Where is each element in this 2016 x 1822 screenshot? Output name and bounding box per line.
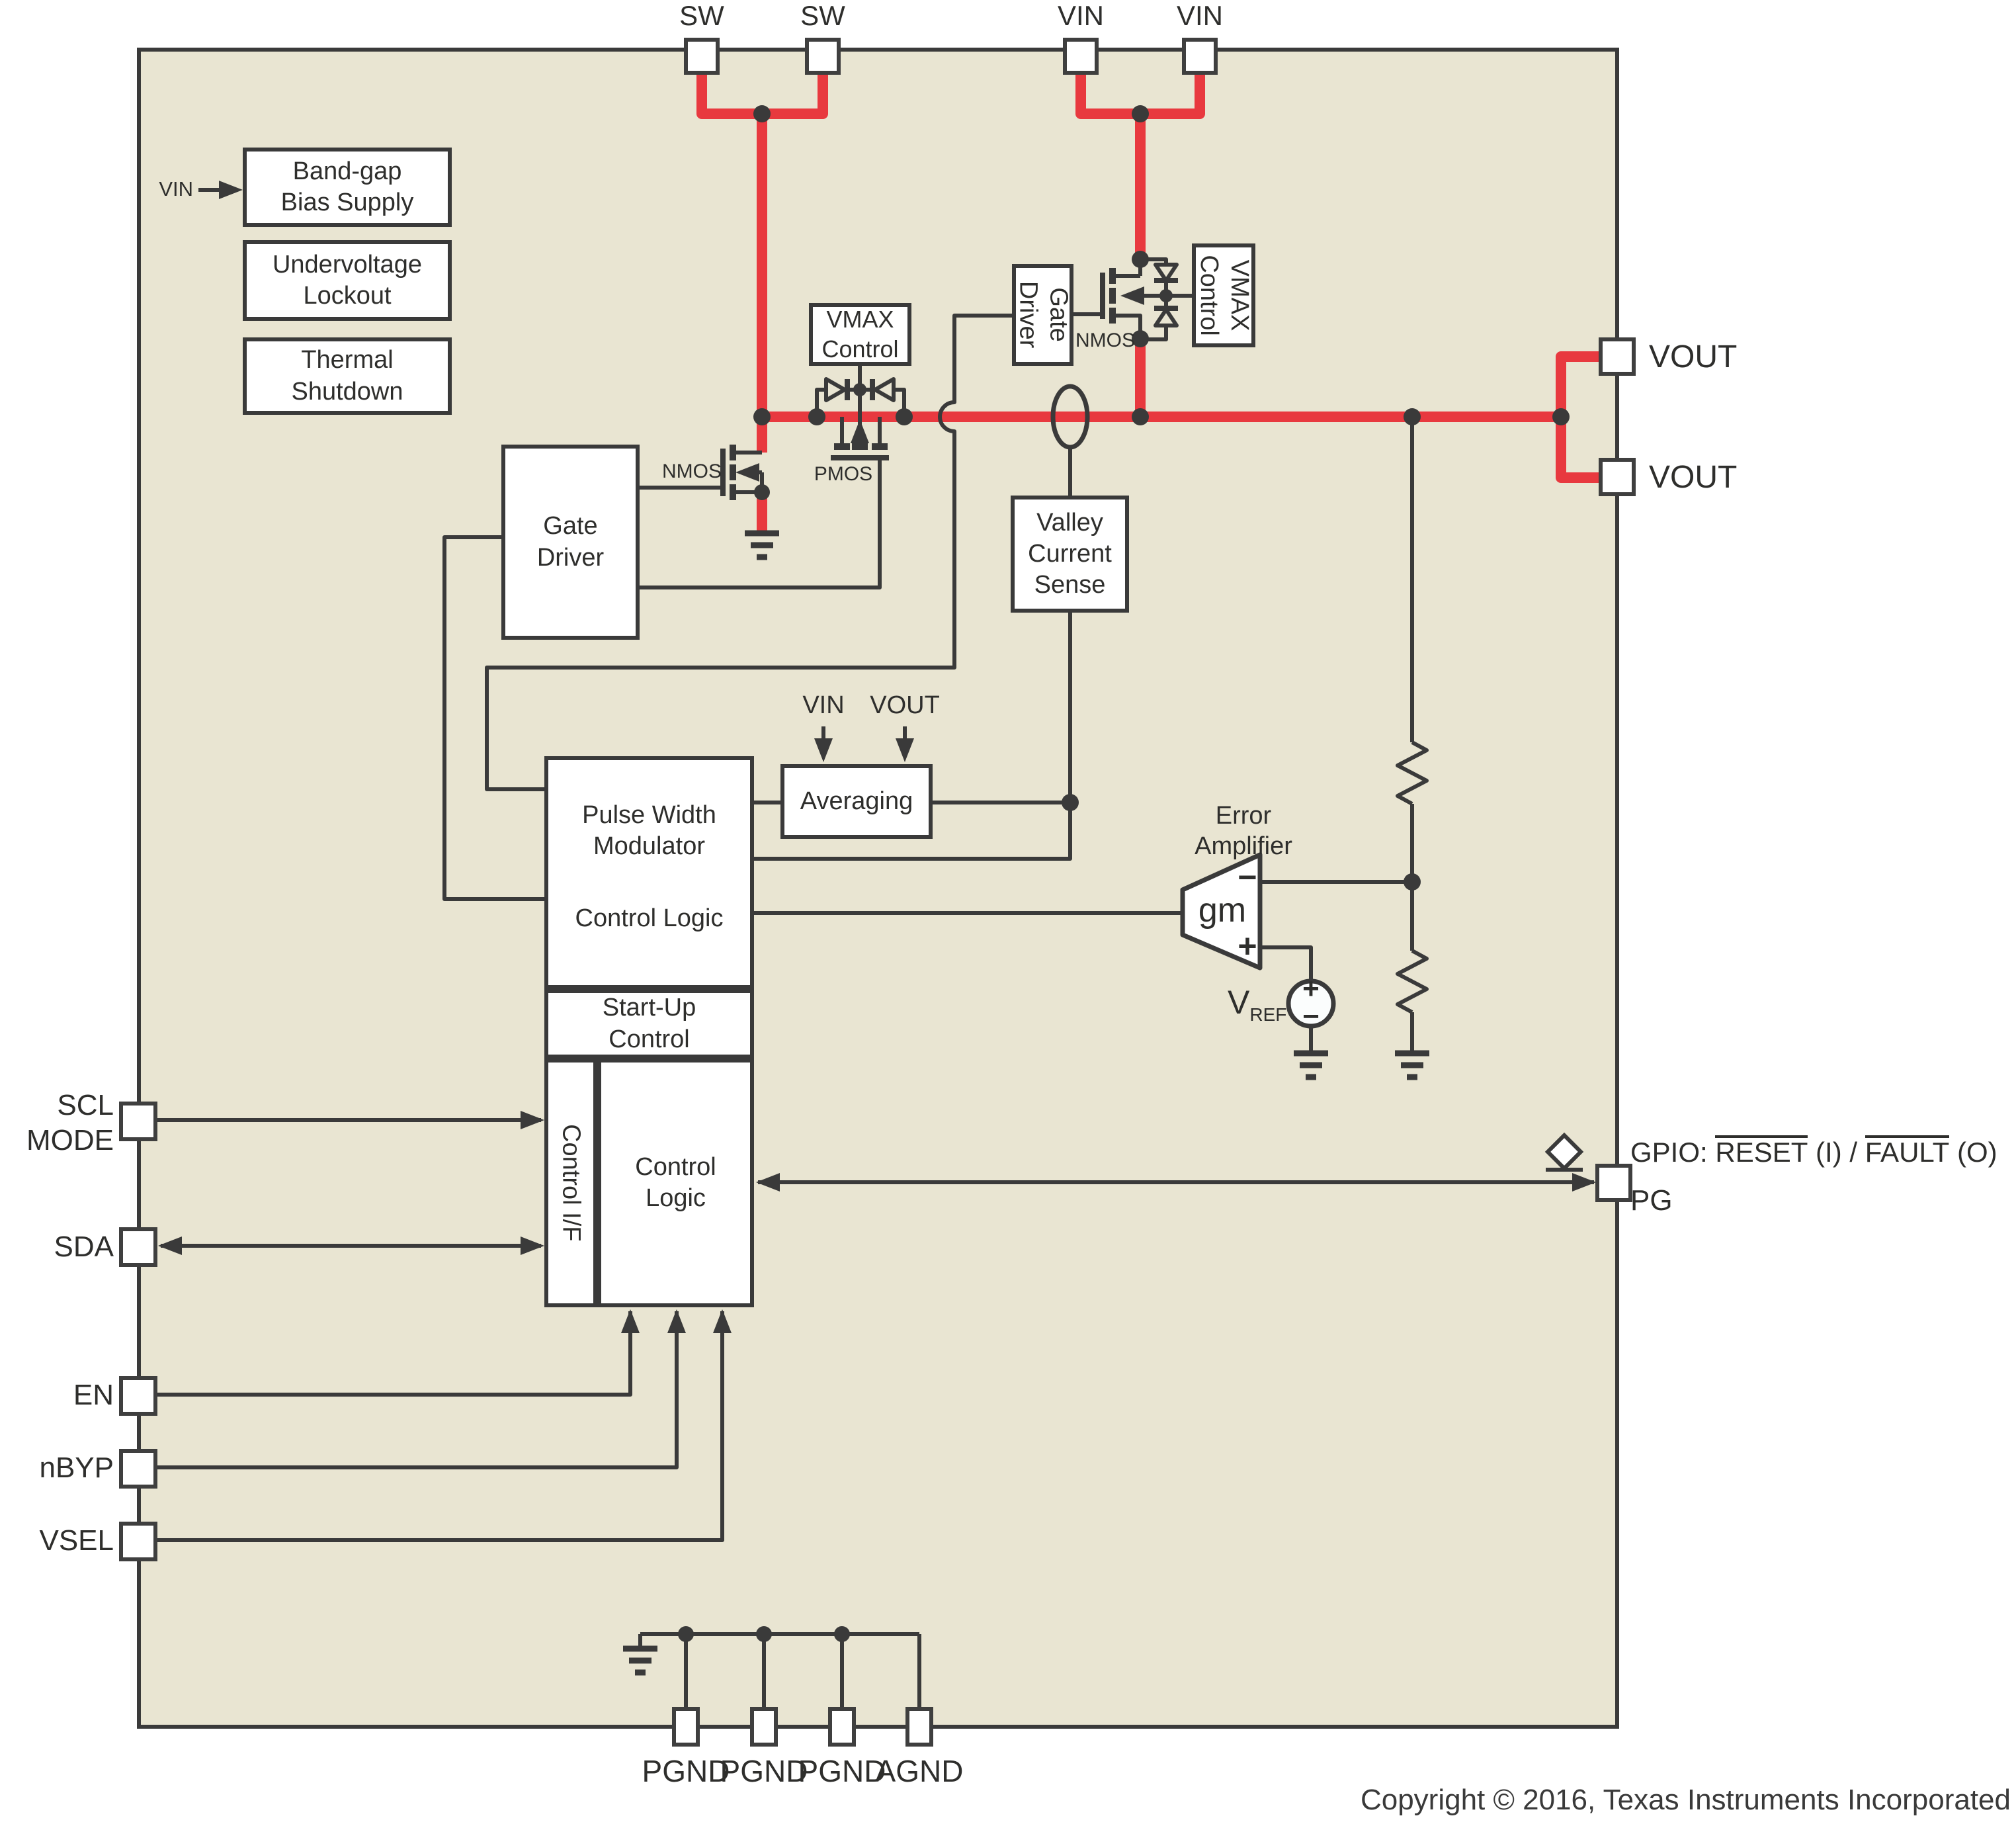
pin-pgnd-3 — [830, 1709, 854, 1745]
pin-label-vsel: VSEL — [15, 1524, 114, 1557]
block-label: Thermal — [301, 345, 393, 376]
block-label: VMAX — [1224, 255, 1254, 336]
block-startup-control: Start-Up Control — [544, 989, 754, 1059]
block-pwm: Pulse Width Modulator Control Logic — [544, 756, 754, 989]
pin-label-pg: PG — [1630, 1184, 1673, 1217]
block-vmax-control-mid: VMAX Control — [809, 303, 911, 366]
block-diagram: Band-gap Bias Supply Undervoltage Lockou… — [0, 0, 2016, 1822]
block-label: Current — [1028, 539, 1112, 570]
pin-label-gpio: GPIO: RESET (I) / FAULT (O) — [1630, 1135, 1997, 1168]
pin-label-mode: MODE — [15, 1123, 114, 1158]
block-label: Sense — [1034, 570, 1106, 601]
block-label: Pulse Width — [582, 800, 716, 831]
block-label: Control — [609, 1024, 690, 1055]
block-label: Valley — [1036, 507, 1103, 539]
pin-sw-2 — [807, 40, 839, 73]
pin-label-sw-1: SW — [662, 0, 741, 32]
pin-label-vin-left: VIN — [94, 177, 193, 201]
gpio-reset: RESET — [1715, 1135, 1808, 1167]
block-label: Undervoltage — [273, 249, 422, 281]
block-vmax-control-right: VMAX Control — [1192, 243, 1255, 347]
nmos-right-label: NMOS — [1059, 329, 1152, 352]
block-label: Driver — [537, 542, 604, 574]
block-label: Control Logic — [575, 903, 724, 934]
block-label: Control — [1193, 255, 1224, 336]
pmos-label: PMOS — [797, 463, 890, 486]
pin-label-sw-2: SW — [783, 0, 862, 32]
gpio-fault: FAULT — [1865, 1135, 1950, 1167]
vref-minus-sign: − — [1294, 1003, 1327, 1031]
gpio-suffix: (O) — [1949, 1137, 1997, 1168]
block-averaging: Averaging — [780, 764, 933, 839]
pin-vsel — [121, 1524, 155, 1559]
block-label: Lockout — [303, 281, 391, 312]
vref-plus-sign: + — [1294, 975, 1327, 1003]
copyright-text: Copyright © 2016, Texas Instruments Inco… — [1224, 1784, 2011, 1817]
averaging-vin-label: VIN — [784, 691, 863, 720]
pin-label-scl: SCL — [15, 1088, 114, 1123]
pin-nbyp — [121, 1451, 155, 1487]
pin-label-scl-mode: SCL MODE — [15, 1088, 114, 1158]
pin-vin-1 — [1065, 40, 1097, 73]
pin-label-vout-1: VOUT — [1649, 339, 1737, 375]
block-label: Control — [821, 335, 898, 365]
pin-label-vout-2: VOUT — [1649, 459, 1737, 496]
block-label: Shutdown — [291, 376, 403, 408]
vref-label: VREF — [1228, 983, 1286, 1025]
block-uvlo: Undervoltage Lockout — [243, 240, 452, 321]
pin-pgnd-1 — [674, 1709, 698, 1745]
gpio-prefix: GPIO: — [1630, 1137, 1715, 1168]
block-label: Driver — [1013, 281, 1043, 348]
block-label: VMAX — [826, 305, 894, 335]
pin-vout-2 — [1601, 460, 1634, 494]
block-gate-driver-left: Gate Driver — [501, 445, 640, 640]
gm-minus-sign: − — [1229, 863, 1266, 892]
block-thermal: Thermal Shutdown — [243, 337, 452, 415]
block-label: Start-Up — [603, 992, 696, 1023]
pin-pgnd-2 — [752, 1709, 776, 1745]
error-amplifier-label: Error Amplifier — [1164, 801, 1323, 861]
pin-sda — [121, 1229, 155, 1265]
pin-label-sda: SDA — [15, 1231, 114, 1264]
vref-sub: REF — [1249, 1004, 1286, 1025]
block-label: Logic — [646, 1183, 706, 1214]
gm-plus-sign: + — [1229, 932, 1266, 961]
pin-label-agnd: AGND — [866, 1755, 972, 1788]
block-label: Bias Supply — [281, 187, 414, 218]
pin-vout-1 — [1601, 339, 1634, 374]
block-label: Control I/F — [556, 1124, 586, 1241]
error-amp-line2: Amplifier — [1195, 831, 1292, 861]
nmos-left-label: NMOS — [646, 460, 738, 483]
block-bandgap: Band-gap Bias Supply — [243, 148, 452, 227]
pin-vin-2 — [1184, 40, 1216, 73]
block-control-logic: Control Logic — [597, 1059, 754, 1307]
pin-label-vin-1: VIN — [1041, 0, 1120, 32]
pin-en — [121, 1378, 155, 1414]
pin-agnd — [907, 1709, 931, 1745]
pin-label-en: EN — [15, 1379, 114, 1412]
block-label: Averaging — [800, 786, 913, 817]
block-label: Band-gap — [293, 156, 402, 187]
pin-gpio-pg — [1597, 1166, 1630, 1200]
error-amp-line1: Error — [1216, 801, 1271, 831]
block-valley-current-sense: Valley Current Sense — [1011, 496, 1129, 613]
pin-sw-1 — [686, 40, 718, 73]
block-label: Control — [635, 1152, 716, 1183]
block-label-group: Pulse Width Modulator — [582, 800, 716, 862]
pin-label-vin-2: VIN — [1160, 0, 1239, 32]
block-label: Modulator — [582, 831, 716, 862]
gm-label: gm — [1193, 892, 1252, 929]
block-label: Gate — [543, 511, 597, 542]
pin-label-nbyp: nBYP — [15, 1452, 114, 1485]
vref-v: V — [1228, 984, 1249, 1021]
gpio-mid: (I) / — [1808, 1137, 1865, 1168]
averaging-vout-label: VOUT — [865, 691, 945, 720]
pin-scl-mode — [121, 1104, 155, 1139]
block-control-if: Control I/F — [544, 1059, 597, 1307]
